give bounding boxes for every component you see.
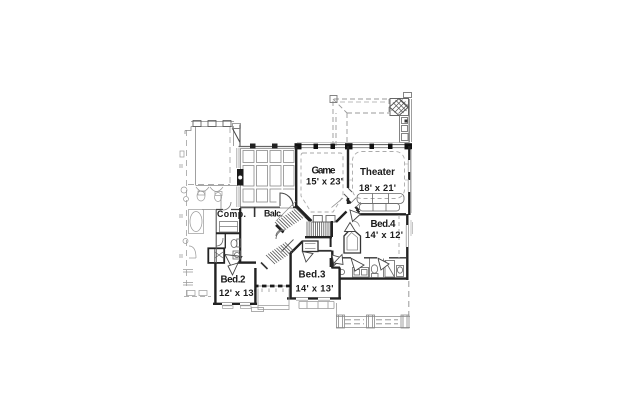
svg-text:Bed.2: Bed.2 (221, 275, 247, 286)
svg-text:Comp.: Comp. (217, 209, 246, 219)
svg-text:15' x 23': 15' x 23' (306, 177, 343, 187)
svg-text:14' x 12': 14' x 12' (365, 230, 403, 240)
svg-text:14' x 13': 14' x 13' (296, 284, 334, 294)
svg-text:Bed.4: Bed.4 (371, 219, 397, 230)
svg-text:12' x 13': 12' x 13' (219, 288, 256, 298)
svg-text:Theater: Theater (360, 167, 395, 178)
svg-text:Game: Game (312, 166, 337, 177)
svg-text:18' x 21': 18' x 21' (359, 183, 396, 193)
svg-text:Bed.3: Bed.3 (299, 270, 327, 281)
